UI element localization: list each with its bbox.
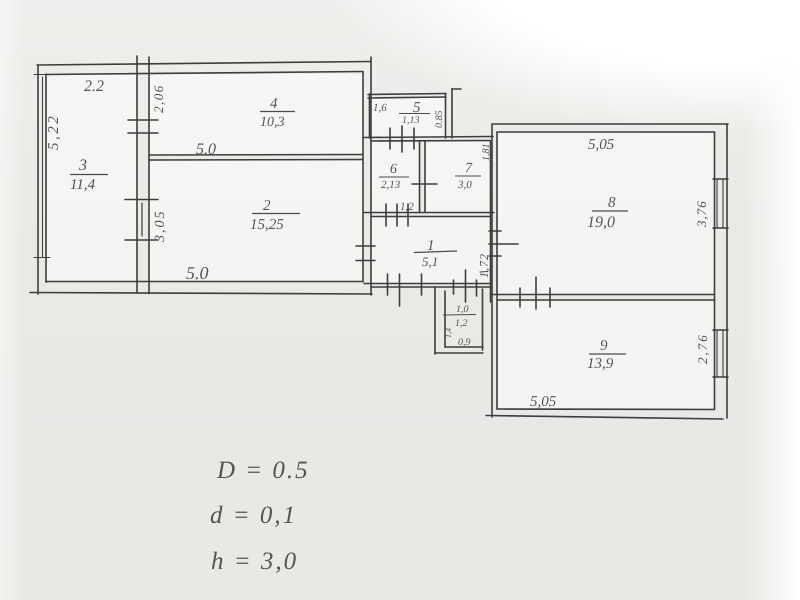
svg-text:2,13: 2,13	[381, 179, 401, 191]
svg-text:5,1: 5,1	[422, 254, 438, 269]
svg-text:1,2: 1,2	[400, 201, 414, 213]
svg-text:2,76: 2,76	[695, 333, 710, 364]
svg-text:D = 0.5: D = 0.5	[216, 457, 310, 484]
svg-text:5,05: 5,05	[588, 137, 615, 153]
svg-text:3: 3	[78, 157, 87, 174]
svg-text:2: 2	[263, 198, 271, 214]
svg-text:8: 8	[608, 195, 616, 211]
svg-text:0,9: 0,9	[458, 337, 471, 348]
svg-text:5.0: 5.0	[196, 141, 216, 158]
svg-text:1,81: 1,81	[481, 144, 492, 162]
svg-text:h = 3,0: h = 3,0	[211, 548, 298, 575]
svg-text:11,4: 11,4	[70, 177, 96, 193]
svg-text:9: 9	[600, 338, 608, 354]
svg-text:19,0: 19,0	[587, 214, 615, 231]
svg-text:d = 0,1: d = 0,1	[210, 502, 297, 529]
svg-text:5.0: 5.0	[186, 263, 209, 283]
svg-text:1,0: 1,0	[456, 304, 469, 315]
svg-text:2,06: 2,06	[151, 84, 166, 113]
svg-text:3,05: 3,05	[153, 210, 168, 244]
svg-text:3,76: 3,76	[694, 200, 709, 228]
svg-text:1,4: 1,4	[444, 328, 453, 338]
svg-text:1,13: 1,13	[402, 115, 420, 126]
svg-text:2.2: 2.2	[84, 78, 104, 95]
svg-text:1,6: 1,6	[373, 102, 387, 114]
svg-text:3,0: 3,0	[457, 179, 472, 191]
svg-text:7: 7	[465, 161, 473, 176]
svg-text:4: 4	[270, 96, 278, 112]
svg-text:10,3: 10,3	[260, 115, 285, 130]
svg-text:1,2: 1,2	[455, 318, 468, 329]
svg-text:5,22: 5,22	[46, 114, 62, 150]
svg-text:0.85: 0.85	[434, 111, 445, 129]
svg-text:1,72: 1,72	[477, 253, 491, 278]
svg-text:13,9: 13,9	[587, 356, 614, 372]
svg-text:6: 6	[390, 162, 397, 177]
svg-text:15,25: 15,25	[250, 217, 284, 233]
svg-text:5,05: 5,05	[530, 394, 557, 410]
